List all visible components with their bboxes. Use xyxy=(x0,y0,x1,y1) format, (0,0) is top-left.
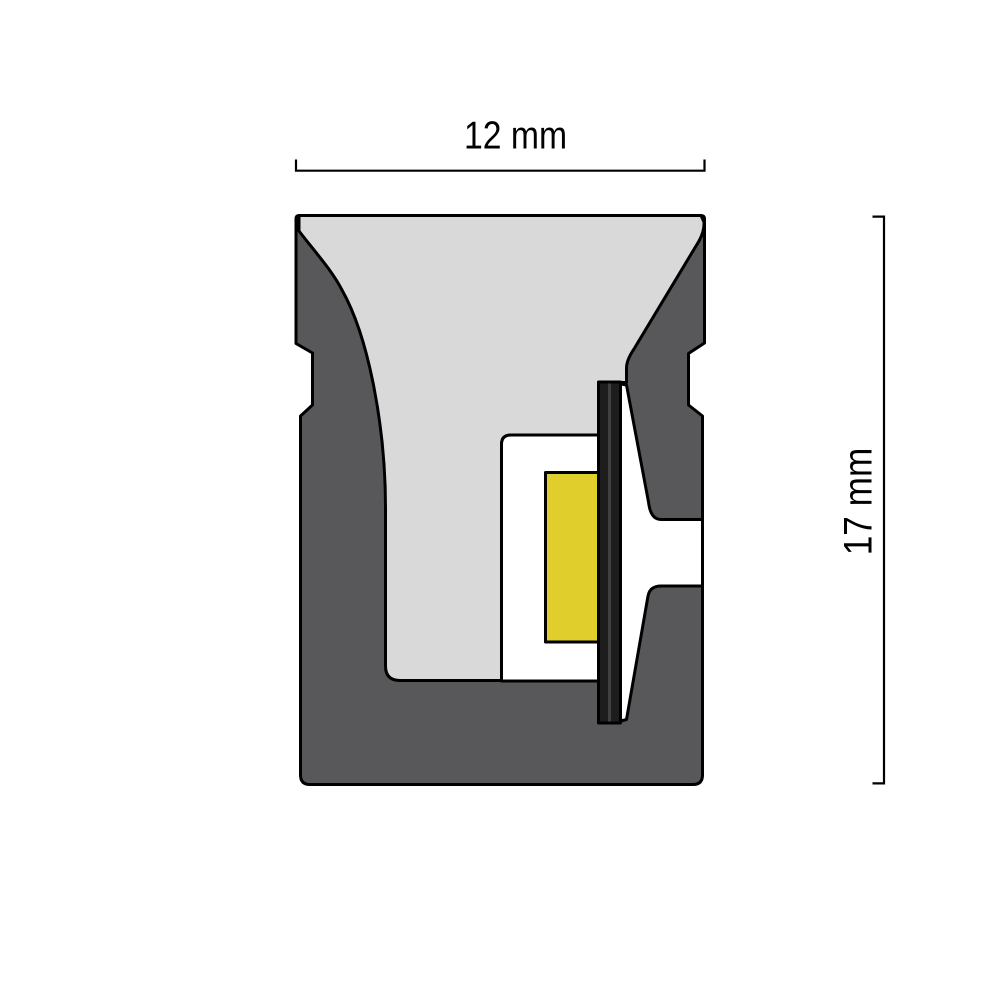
svg-text:17 mm: 17 mm xyxy=(835,448,880,556)
svg-text:12 mm: 12 mm xyxy=(464,113,567,157)
